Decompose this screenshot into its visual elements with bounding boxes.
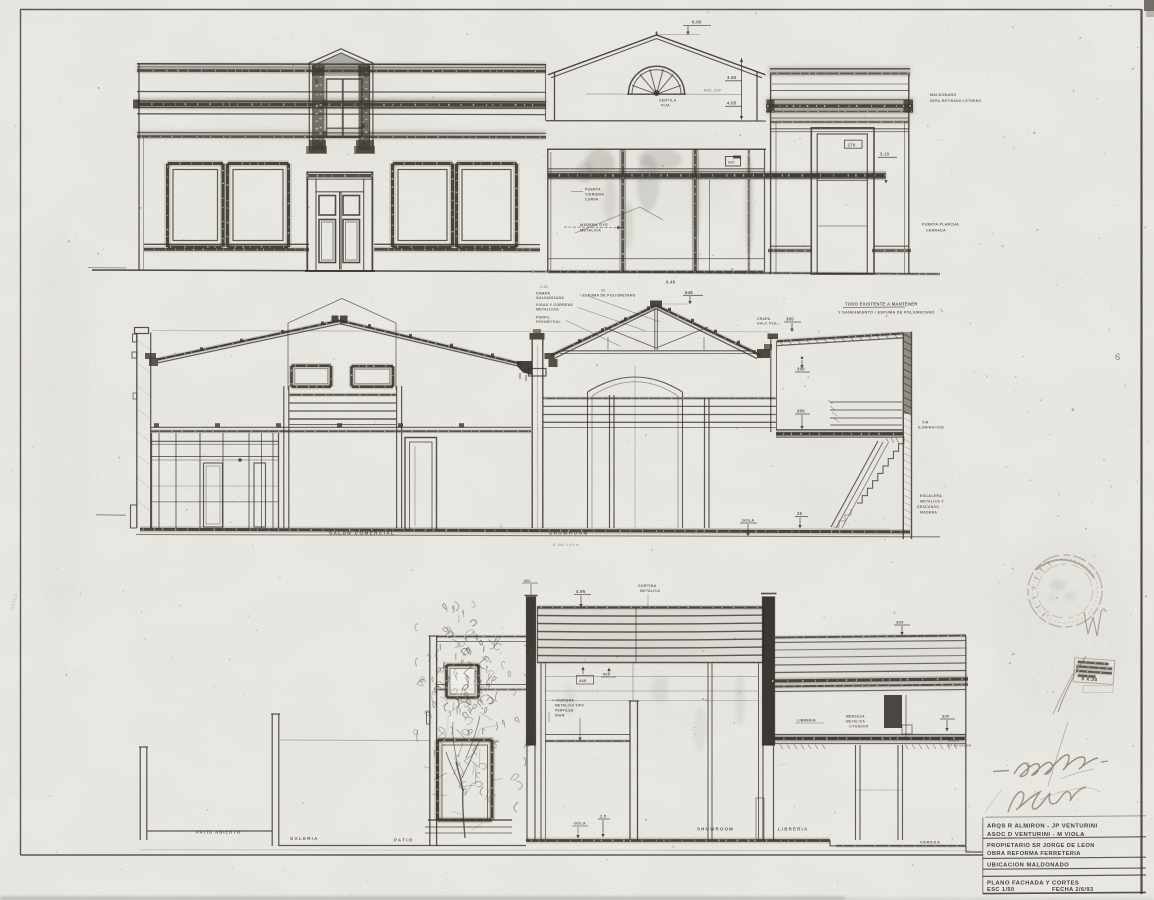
svg-text:GALERIA: GALERIA: [290, 836, 319, 841]
svg-text:GOLA: GOLA: [574, 822, 586, 826]
svg-text:METALICAS: METALICAS: [536, 308, 559, 312]
svg-text:CHAPA: CHAPA: [536, 292, 550, 296]
svg-text:VEREDA: VEREDA: [920, 841, 941, 845]
svg-text:PUERTA PLANCHA: PUERTA PLANCHA: [922, 223, 959, 227]
svg-text:0.45: 0.45: [540, 285, 548, 289]
svg-text:880: 880: [524, 579, 531, 583]
svg-text:SHOWROOM: SHOWROOM: [697, 827, 734, 832]
svg-text:CERRADA: CERRADA: [926, 229, 946, 233]
svg-text:2.5: 2.5: [600, 814, 607, 819]
svg-text:METALICA: METALICA: [846, 720, 866, 724]
svg-text:T/H: T/H: [922, 421, 929, 425]
svg-text:MADERA GYS: MADERA GYS: [580, 223, 608, 227]
svg-text:/ ESPUMA DE POLIURETANO: / ESPUMA DE POLIURETANO: [580, 294, 636, 298]
svg-text:6: 6: [1115, 352, 1120, 363]
svg-text:CORTINA: CORTINA: [638, 584, 657, 588]
svg-text:PATIO ABIERTO: PATIO ABIERTO: [196, 830, 241, 835]
svg-text:365: 365: [896, 620, 904, 625]
svg-text:MENSULA: MENSULA: [846, 715, 865, 719]
svg-text:3.10: 3.10: [880, 152, 890, 157]
svg-text:ASOC D VENTURINI - M VIOLA: ASOC D VENTURINI - M VIOLA: [987, 832, 1085, 838]
svg-text:SHOWROOM: SHOWROOM: [549, 531, 589, 536]
svg-text:PROPIETARIO SR JORGE DE LEO: PROPIETARIO SR JORGE DE LEON: [987, 843, 1095, 849]
svg-text:ARQS R ALMIRON - JP VENTUR: ARQS R ALMIRON - JP VENTURINI: [987, 823, 1098, 829]
svg-text:4.95: 4.95: [576, 589, 586, 594]
svg-text:5.: 5.: [1108, 327, 1112, 332]
svg-text:ILUMINACION: ILUMINACION: [918, 426, 944, 430]
svg-text:B. 294 x 4.5 m: B. 294 x 4.5 m: [553, 543, 579, 547]
svg-text:FIJA: FIJA: [661, 104, 670, 108]
svg-text:605: 605: [728, 161, 735, 165]
svg-text:4.55: 4.55: [727, 101, 737, 106]
svg-text:300: 300: [942, 714, 950, 719]
svg-text:SERA RETIRADO LETRERO: SERA RETIRADO LETRERO: [930, 99, 981, 103]
svg-text:PLANO FACHADA Y CORTES: PLANO FACHADA Y CORTES: [987, 881, 1079, 887]
svg-text:VENTILA: VENTILA: [659, 99, 677, 103]
svg-text:Y SANEAMIENTO / ESPUMA DE POLI: Y SANEAMIENTO / ESPUMA DE POLIURETANO: [838, 311, 935, 315]
svg-text:3.65: 3.65: [727, 75, 737, 80]
svg-text:PERFIL: PERFIL: [536, 316, 551, 320]
svg-text:METALICA: METALICA: [580, 229, 601, 233]
svg-text:OBRA REFORMA FERRETERIA: OBRA REFORMA FERRETERIA: [987, 851, 1081, 857]
svg-text:RAD. SUP: RAD. SUP: [704, 89, 722, 93]
svg-text:6.00: 6.00: [692, 20, 702, 25]
svg-text:270: 270: [848, 143, 856, 148]
svg-text:LIBRERIA: LIBRERIA: [797, 719, 816, 723]
svg-text:6.48: 6.48: [666, 280, 676, 285]
svg-text:ESC 1/50: ESC 1/50: [987, 887, 1015, 893]
svg-text:VIGAS Y CORREAS: VIGAS Y CORREAS: [536, 303, 573, 307]
svg-text:FECHA 2/6/93: FECHA 2/6/93: [1052, 887, 1094, 893]
svg-text:365: 365: [786, 317, 794, 322]
svg-text:LIBRERIA: LIBRERIA: [778, 827, 808, 832]
svg-text:PERIMETRAL: PERIMETRAL: [536, 320, 561, 324]
svg-text:GALV. PLK: GALV. PLK: [757, 322, 777, 326]
svg-text:DT 30 VALOR: DT 30 VALOR: [948, 744, 972, 748]
svg-text:CHAPA: CHAPA: [757, 317, 771, 321]
svg-text:C/TENSOR: C/TENSOR: [849, 725, 869, 729]
svg-text:25: 25: [601, 289, 605, 293]
svg-text:GOLA: GOLA: [742, 518, 754, 523]
svg-text:SALON COMERCIAL: SALON COMERCIAL: [329, 531, 395, 536]
svg-text:GALVANIZADA: GALVANIZADA: [536, 296, 564, 300]
svg-text:METALICA: METALICA: [640, 589, 660, 593]
svg-text:TODO EXISTENTE A MANTENER: TODO EXISTENTE A MANTENER: [845, 302, 918, 307]
svg-text:300: 300: [797, 367, 805, 372]
svg-text:PATIO: PATIO: [394, 838, 414, 843]
svg-text:UBICACION MALDONADO: UBICACION MALDONADO: [987, 862, 1069, 868]
svg-text:MALDONADO: MALDONADO: [930, 93, 956, 97]
svg-text:NIVEL: NIVEL: [948, 739, 959, 743]
svg-text:300: 300: [797, 409, 805, 414]
svg-text:648: 648: [685, 290, 693, 295]
svg-text:25: 25: [797, 511, 803, 516]
